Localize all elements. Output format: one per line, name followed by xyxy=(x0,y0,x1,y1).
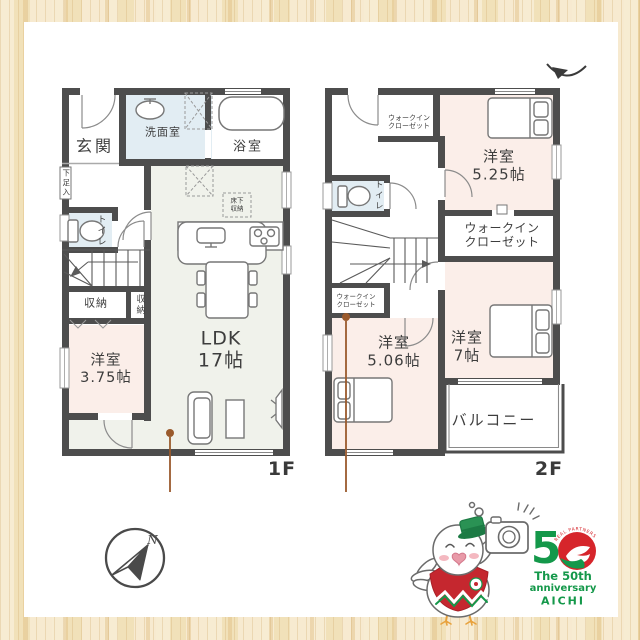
floor-plan-page: { "floor1": { "label": "1F", "rooms": { … xyxy=(0,0,640,640)
room-label-storage-a: 収納 xyxy=(84,298,108,311)
toilet-icon-2f xyxy=(338,186,370,207)
bed-icon-7 xyxy=(490,305,552,357)
room-label-wic-north: ウォークイン クローゼット xyxy=(388,114,430,131)
floor-label-2f: 2F xyxy=(535,458,563,480)
floor-label-1f: 1F xyxy=(268,458,296,480)
direction-arrow-icon xyxy=(547,64,586,79)
sofa-icon xyxy=(188,392,212,444)
room-label-ldk: LDK 17帖 xyxy=(198,328,244,373)
room-label-storage-b: 収納 xyxy=(135,294,144,316)
room-label-bedroom-375: 洋室 3.75帖 xyxy=(80,353,132,387)
stairs-1f-icon xyxy=(62,250,150,286)
room-label-bathroom: 浴室 xyxy=(233,139,263,154)
stairs-2f-icon xyxy=(332,220,438,283)
flash-sparkle-icon xyxy=(518,503,539,519)
room-label-wic-center: ウォークイン クローゼット xyxy=(464,221,539,249)
logo-line-1: The 50th xyxy=(534,570,592,584)
room-label-bedroom-506: 洋室 5.06帖 xyxy=(367,334,420,369)
room-label-bedroom-525: 洋室 5.25帖 xyxy=(472,148,525,183)
mascot-illustration xyxy=(410,503,539,626)
bed-icon-506 xyxy=(334,378,392,422)
room-label-shoe-storage: 下足入 xyxy=(62,169,70,198)
logo-digit-5: 5 xyxy=(531,523,562,575)
logo-line-2: anniversary xyxy=(530,583,597,595)
compass-north-label: N xyxy=(147,533,159,547)
room-label-toilet-1f: トイレ xyxy=(96,215,105,248)
plan-2f xyxy=(323,88,563,456)
room-label-washroom: 洗面室 xyxy=(145,127,181,140)
room-label-toilet-2f: トイレ xyxy=(374,180,383,212)
room-label-balcony: バルコニー xyxy=(452,412,537,430)
room-label-wic-west: ウォークイン クローゼット xyxy=(337,293,376,308)
room-label-bedroom-7: 洋室 7帖 xyxy=(451,329,483,364)
side-table-icon xyxy=(226,400,244,438)
dining-table-icon xyxy=(197,262,257,318)
bathtub-icon xyxy=(219,97,284,130)
room-label-entrance: 玄関 xyxy=(76,138,114,157)
logo-line-3: AICHI xyxy=(541,596,585,609)
bed-icon-525 xyxy=(488,98,552,138)
room-label-underfloor-storage: 床下 収納 xyxy=(231,197,244,212)
